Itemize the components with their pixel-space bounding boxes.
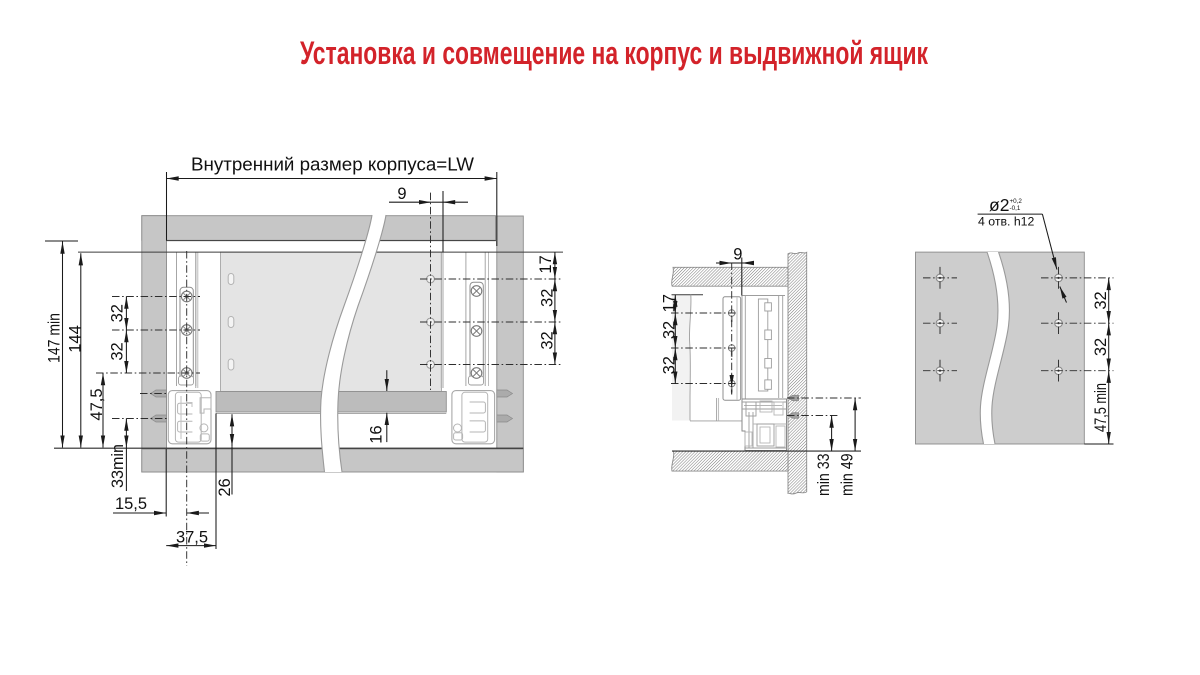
svg-text:147 min: 147 min (45, 313, 63, 363)
svg-text:32: 32 (538, 331, 556, 349)
svg-text:32: 32 (661, 321, 679, 339)
svg-text:47,5: 47,5 (88, 388, 106, 420)
svg-text:33min: 33min (109, 444, 127, 488)
svg-text:32: 32 (108, 342, 126, 360)
svg-text:32: 32 (1092, 338, 1110, 356)
svg-text:min 49: min 49 (838, 454, 856, 497)
svg-text:Внутренний размер корпуса=LW: Внутренний размер корпуса=LW (191, 154, 475, 175)
svg-text:17: 17 (537, 255, 555, 273)
svg-text:32: 32 (538, 289, 556, 307)
svg-text:17: 17 (660, 294, 678, 312)
svg-text:15,5: 15,5 (115, 495, 147, 513)
svg-text:32: 32 (108, 304, 126, 322)
svg-text:26: 26 (216, 478, 234, 496)
svg-text:16: 16 (367, 425, 385, 443)
svg-text:min 33: min 33 (815, 454, 833, 497)
svg-text:+0,2: +0,2 (1010, 198, 1023, 205)
svg-text:-0,1: -0,1 (1010, 205, 1021, 212)
svg-text:32: 32 (1092, 291, 1110, 309)
svg-text:37,5: 37,5 (176, 529, 208, 547)
svg-text:47,5 min: 47,5 min (1092, 383, 1110, 432)
svg-text:Установка и совмещение на корп: Установка и совмещение на корпус и выдви… (300, 35, 929, 71)
svg-text:9: 9 (733, 246, 742, 264)
svg-text:144: 144 (66, 325, 84, 353)
svg-text:32: 32 (661, 356, 679, 374)
svg-text:9: 9 (397, 185, 406, 203)
svg-text:ø2: ø2 (989, 195, 1009, 215)
svg-text:4 отв. h12: 4 отв. h12 (978, 215, 1034, 229)
